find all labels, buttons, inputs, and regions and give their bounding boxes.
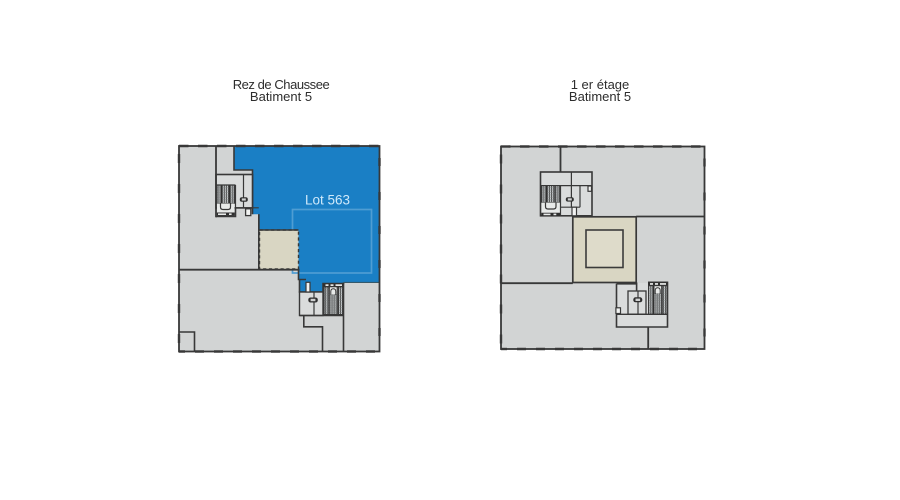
svg-text:Lot 563: Lot 563 xyxy=(305,193,350,208)
